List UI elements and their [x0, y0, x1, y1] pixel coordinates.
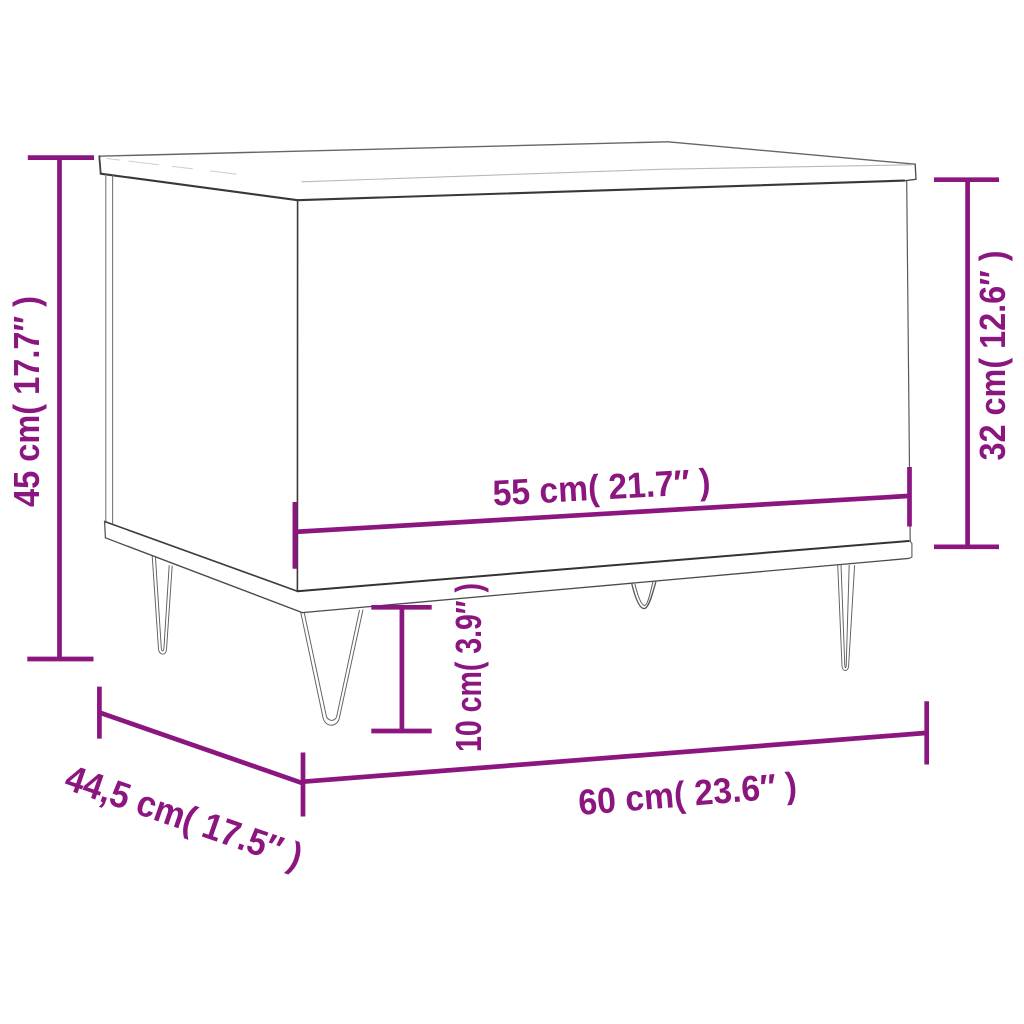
svg-text:32 cm( 12.6″ ): 32 cm( 12.6″ ) — [972, 251, 1013, 461]
svg-text:10 cm( 3.9″ ): 10 cm( 3.9″ ) — [448, 583, 489, 752]
svg-text:45 cm( 17.7″ ): 45 cm( 17.7″ ) — [6, 296, 47, 507]
